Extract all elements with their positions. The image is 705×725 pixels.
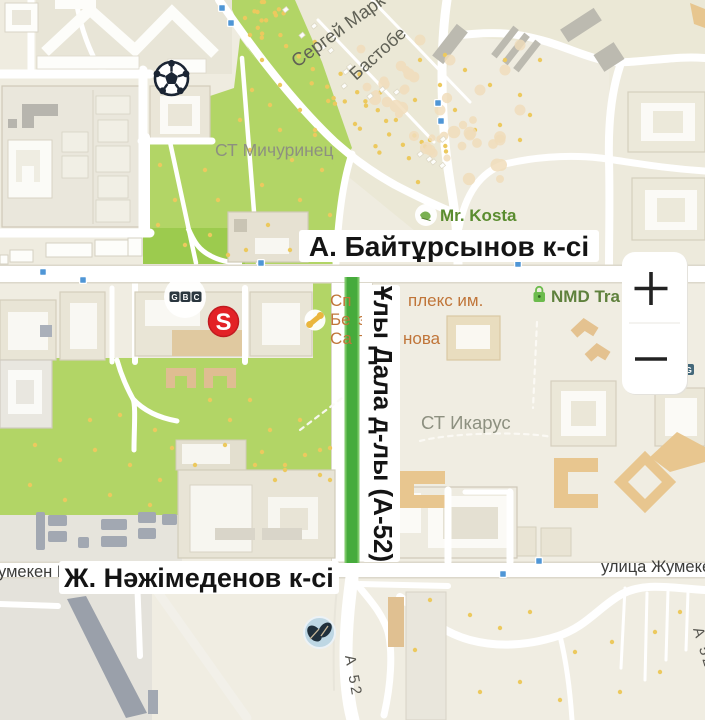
svg-text:Ұлы Дала д-лы (А-52): Ұлы Дала д-лы (А-52) bbox=[368, 286, 398, 562]
svg-text:NMD Tra: NMD Tra bbox=[551, 287, 621, 306]
svg-text:плекс им.: плекс им. bbox=[408, 291, 483, 310]
svg-text:Бе: Бе bbox=[330, 310, 351, 329]
svg-text:А. Байтұрсынов к-сі: А. Байтұрсынов к-сі bbox=[309, 231, 589, 262]
svg-text:Са: Са bbox=[330, 329, 352, 348]
svg-text:B: B bbox=[183, 293, 189, 302]
svg-text:S: S bbox=[215, 309, 231, 336]
svg-text:Сп: Сп bbox=[330, 291, 351, 310]
svg-text:СТ Икарус: СТ Икарус bbox=[421, 412, 511, 433]
svg-text:улица Жумекен: улица Жумекен bbox=[601, 558, 705, 576]
svg-text:C: C bbox=[194, 293, 200, 302]
svg-text:СТ Мичуринец: СТ Мичуринец bbox=[215, 140, 334, 160]
svg-text:Ж. Нәжімеденов к-сі: Ж. Нәжімеденов к-сі bbox=[63, 563, 334, 593]
svg-text:G: G bbox=[171, 293, 177, 302]
svg-text:нова: нова bbox=[403, 329, 441, 348]
svg-text:умекен Н: умекен Н bbox=[0, 563, 69, 581]
svg-text:Mr. Kosta: Mr. Kosta bbox=[440, 206, 517, 225]
